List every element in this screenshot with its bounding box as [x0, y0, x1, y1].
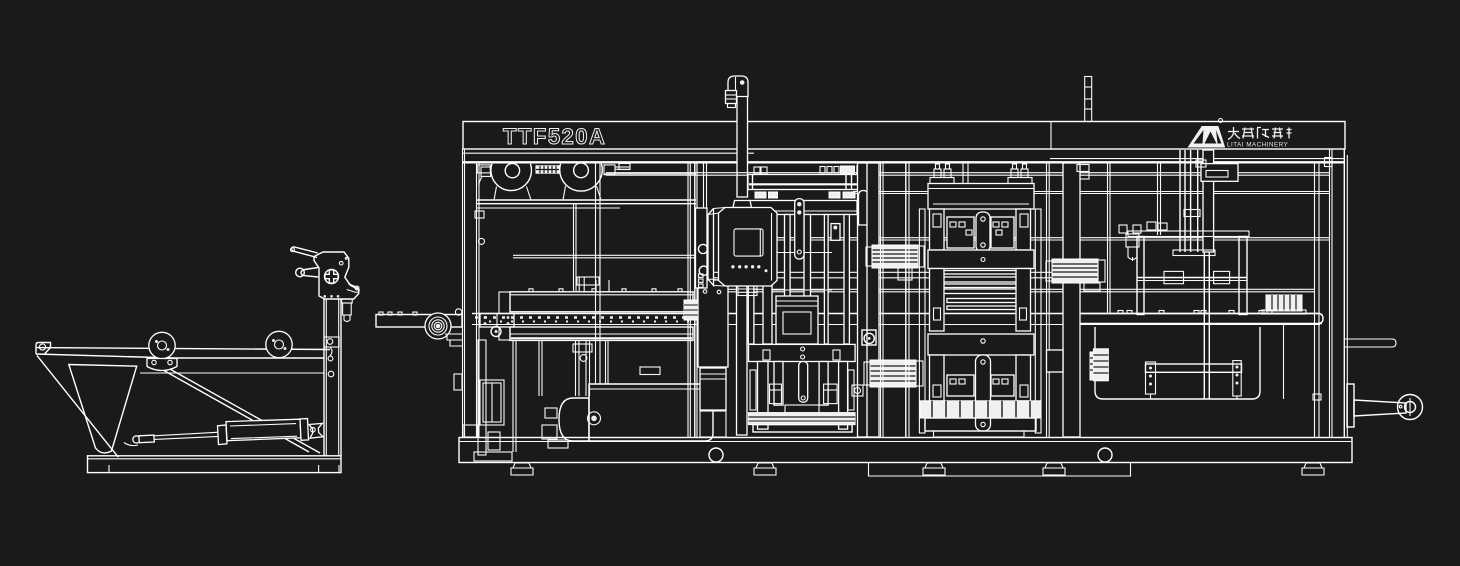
svg-text:TTF520A: TTF520A: [503, 124, 606, 149]
svg-text:LITAI MACHINERY: LITAI MACHINERY: [1227, 142, 1288, 149]
